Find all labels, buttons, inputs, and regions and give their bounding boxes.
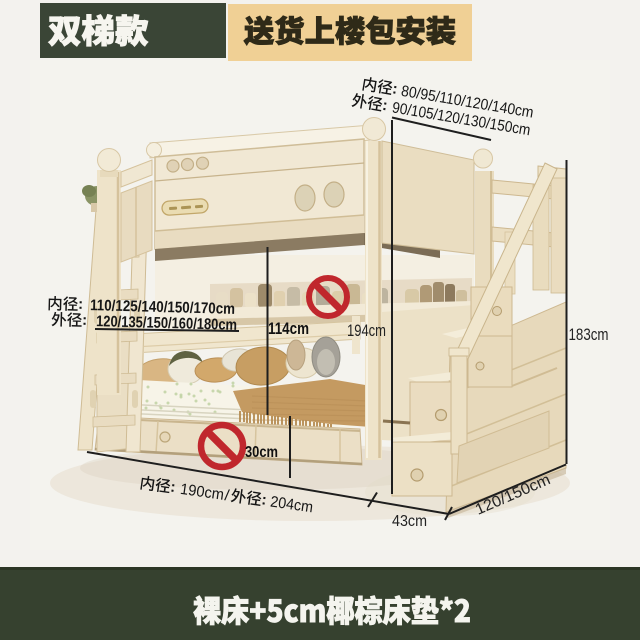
svg-text:183cm: 183cm: [569, 326, 609, 344]
svg-text:30cm: 30cm: [245, 444, 278, 461]
svg-text::: :: [78, 296, 83, 313]
svg-text:114cm: 114cm: [268, 319, 309, 338]
svg-text::: :: [82, 312, 87, 329]
svg-text:194cm: 194cm: [347, 322, 386, 340]
svg-text:43cm: 43cm: [392, 513, 427, 530]
